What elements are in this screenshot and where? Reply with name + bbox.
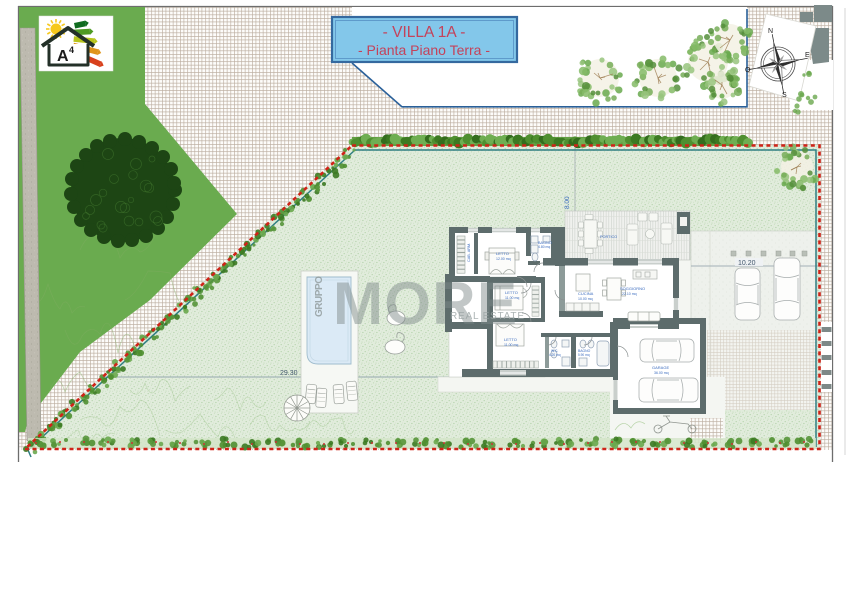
svg-text:10.20: 10.20 [738, 260, 756, 267]
svg-text:CUCINA: CUCINA [578, 291, 594, 296]
svg-text:- Pianta Piano Terra -: - Pianta Piano Terra - [358, 42, 490, 58]
svg-text:N: N [768, 28, 773, 35]
svg-text:29.30: 29.30 [280, 370, 298, 377]
svg-text:REAL ESTATE: REAL ESTATE [450, 311, 524, 322]
svg-text:8.00: 8.00 [564, 196, 571, 209]
svg-text:GARAGE: GARAGE [652, 365, 669, 370]
svg-text:MORE: MORE [333, 270, 517, 337]
svg-text:GRUPPO: GRUPPO [314, 275, 325, 317]
svg-text:S: S [782, 92, 787, 99]
svg-text:O: O [745, 67, 751, 74]
svg-text:11.00 mq: 11.00 mq [504, 343, 518, 347]
svg-text:36.00 mq: 36.00 mq [654, 371, 669, 375]
svg-text:5.90 mq: 5.90 mq [578, 353, 590, 357]
svg-text:- VILLA 1A -: - VILLA 1A - [383, 24, 466, 41]
svg-text:CAB. ARM.: CAB. ARM. [467, 243, 471, 262]
svg-text:4.20 mq: 4.20 mq [549, 353, 561, 357]
svg-text:PORTICO: PORTICO [600, 235, 617, 239]
svg-text:LETTO: LETTO [504, 337, 517, 342]
svg-text:10.00 mq: 10.00 mq [578, 297, 593, 301]
svg-text:4.80 mq: 4.80 mq [538, 245, 550, 249]
svg-text:22.10 mq: 22.10 mq [622, 292, 637, 296]
svg-text:12.00 mq: 12.00 mq [496, 257, 511, 261]
svg-text:E: E [805, 52, 810, 59]
svg-text:LETTO: LETTO [496, 251, 509, 256]
svg-text:SOGGIORNO: SOGGIORNO [620, 286, 645, 291]
svg-text:A: A [57, 48, 69, 65]
svg-text:4: 4 [69, 45, 74, 55]
